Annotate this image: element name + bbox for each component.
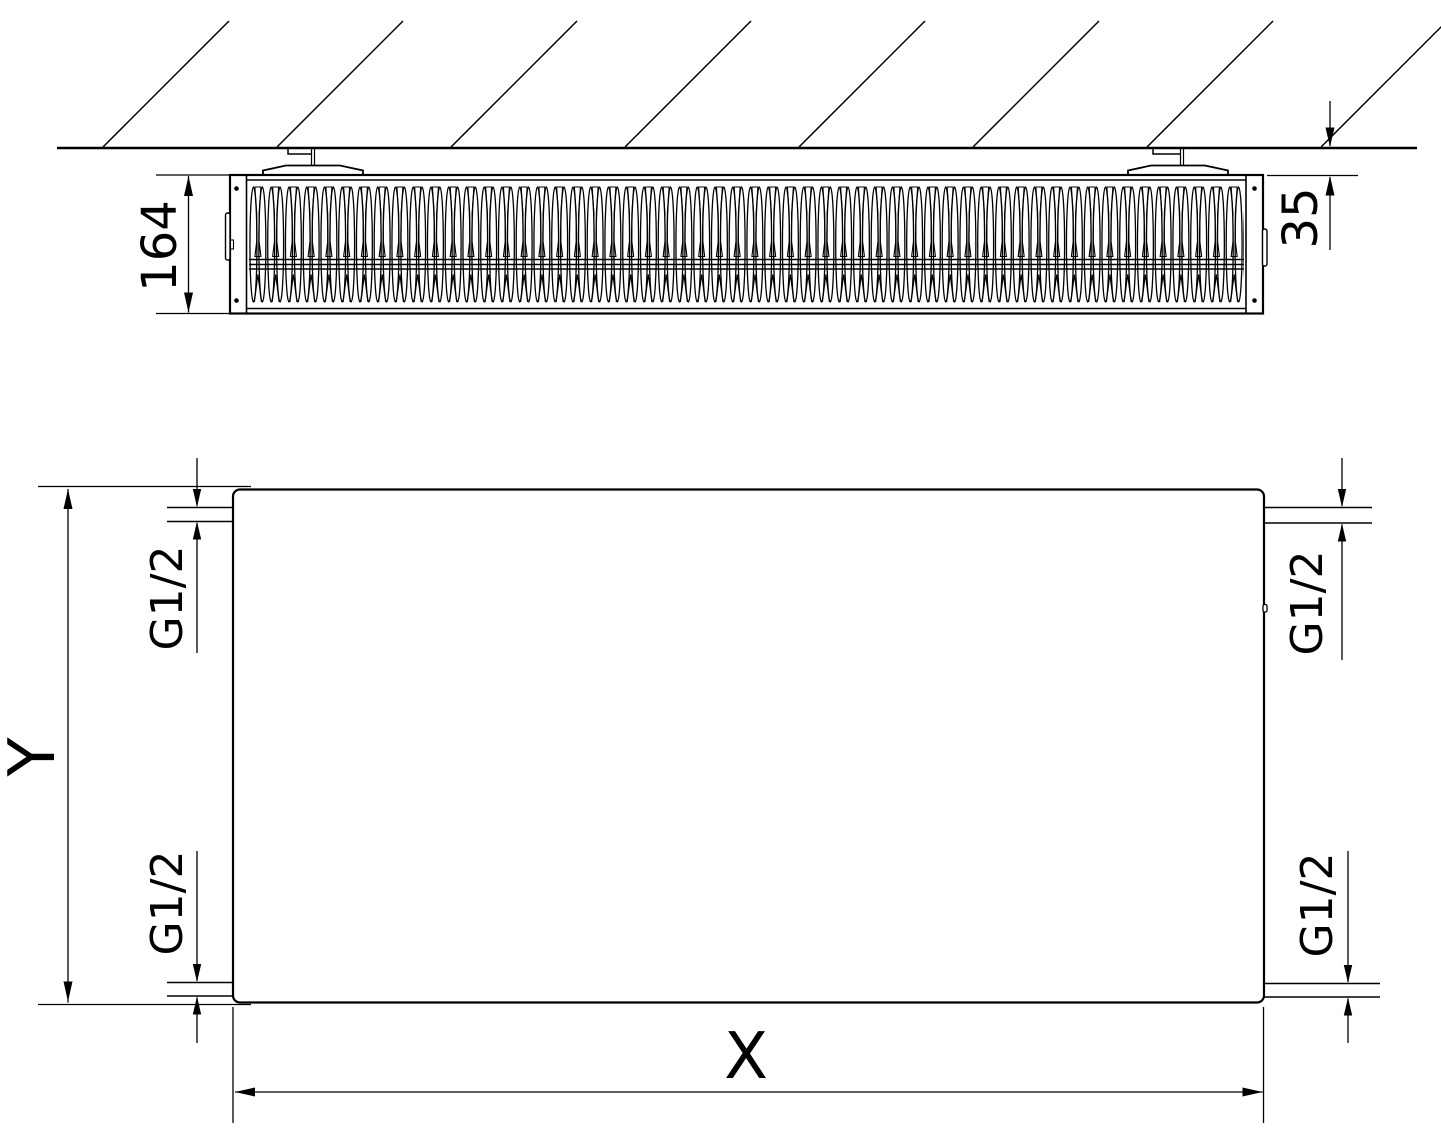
depth-dimension-label: 164 bbox=[132, 200, 188, 292]
connection-bottom-right-label: G1/2 bbox=[1292, 853, 1343, 958]
radiator-front-panel bbox=[233, 490, 1264, 1003]
radiator-top-view bbox=[226, 175, 1268, 314]
connection-top-left: G1/2 bbox=[142, 458, 233, 653]
height-dimension-label: Y bbox=[0, 737, 70, 778]
connection-bottom-left-label: G1/2 bbox=[142, 851, 193, 956]
connection-top-right-label: G1/2 bbox=[1282, 551, 1333, 656]
dimension-height-y: Y bbox=[0, 487, 251, 1005]
wall-clearance-dimension-label: 35 bbox=[1273, 187, 1329, 248]
dimension-depth-164: 164 bbox=[132, 175, 231, 314]
technical-drawing-canvas: 164 35 Y X G1/2 bbox=[0, 0, 1441, 1131]
convector-fin-grille bbox=[249, 186, 1244, 304]
connection-top-right: G1/2 bbox=[1264, 458, 1372, 660]
wall-hatching bbox=[103, 21, 1441, 147]
side-tab-left bbox=[226, 213, 231, 260]
side-tab-right bbox=[1263, 229, 1268, 266]
connection-bottom-left: G1/2 bbox=[142, 851, 233, 1043]
mounting-bracket-right-icon bbox=[1128, 148, 1228, 175]
width-dimension-label: X bbox=[724, 1020, 768, 1094]
air-vent-nub bbox=[1263, 605, 1267, 613]
radiator-dimensional-drawing: 164 35 Y X G1/2 bbox=[0, 0, 1441, 1131]
connection-bottom-right: G1/2 bbox=[1264, 851, 1380, 1043]
side-tab-left-detail bbox=[231, 240, 234, 249]
dimension-width-x: X bbox=[233, 1007, 1264, 1123]
mounting-bracket-left-icon bbox=[263, 148, 363, 175]
connection-top-left-label: G1/2 bbox=[142, 546, 193, 651]
